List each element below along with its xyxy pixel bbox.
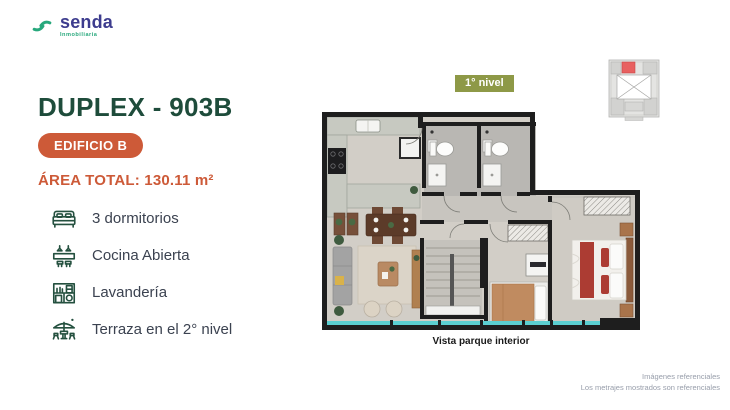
- feature-item-laundry: Lavandería: [50, 274, 232, 311]
- kitchen-icon: [50, 242, 78, 270]
- senda-logo: senda Inmobiliaria: [30, 13, 113, 44]
- bed-icon: [50, 205, 78, 233]
- level-badge: 1° nivel: [455, 75, 514, 92]
- senda-logo-icon: [30, 13, 54, 44]
- feature-item-terrace: Terraza en el 2° nivel: [50, 311, 232, 348]
- floorplan-caption: Vista parque interior: [322, 336, 640, 347]
- disclaimer: Imágenes referenciales Los metrajes most…: [581, 372, 720, 394]
- building-badge: EDIFICIO B: [38, 133, 143, 158]
- feature-label: Lavandería: [92, 284, 167, 301]
- logo-tagline: Inmobiliaria: [60, 33, 113, 39]
- disclaimer-line2: Los metrajes mostrados son referenciales: [581, 383, 720, 394]
- logo-name: senda: [60, 13, 113, 31]
- feature-item-bedrooms: 3 dormitorios: [50, 200, 232, 237]
- disclaimer-line1: Imágenes referenciales: [581, 372, 720, 383]
- feature-label: 3 dormitorios: [92, 210, 179, 227]
- unit-title: DUPLEX - 903B: [38, 92, 233, 123]
- feature-item-kitchen: Cocina Abierta: [50, 237, 232, 274]
- listing-sheet: senda Inmobiliaria DUPLEX - 903B EDIFICI…: [0, 0, 730, 410]
- floorplan-drawing: [322, 112, 640, 335]
- feature-list: 3 dormitorios Cocina Abierta: [50, 200, 232, 348]
- feature-label: Terraza en el 2° nivel: [92, 321, 232, 338]
- laundry-icon: [50, 279, 78, 307]
- keyplan-unit-highlight: [622, 62, 635, 73]
- total-area-label: ÁREA TOTAL: 130.11 m²: [38, 172, 214, 189]
- feature-label: Cocina Abierta: [92, 247, 190, 264]
- terrace-icon: [50, 316, 78, 344]
